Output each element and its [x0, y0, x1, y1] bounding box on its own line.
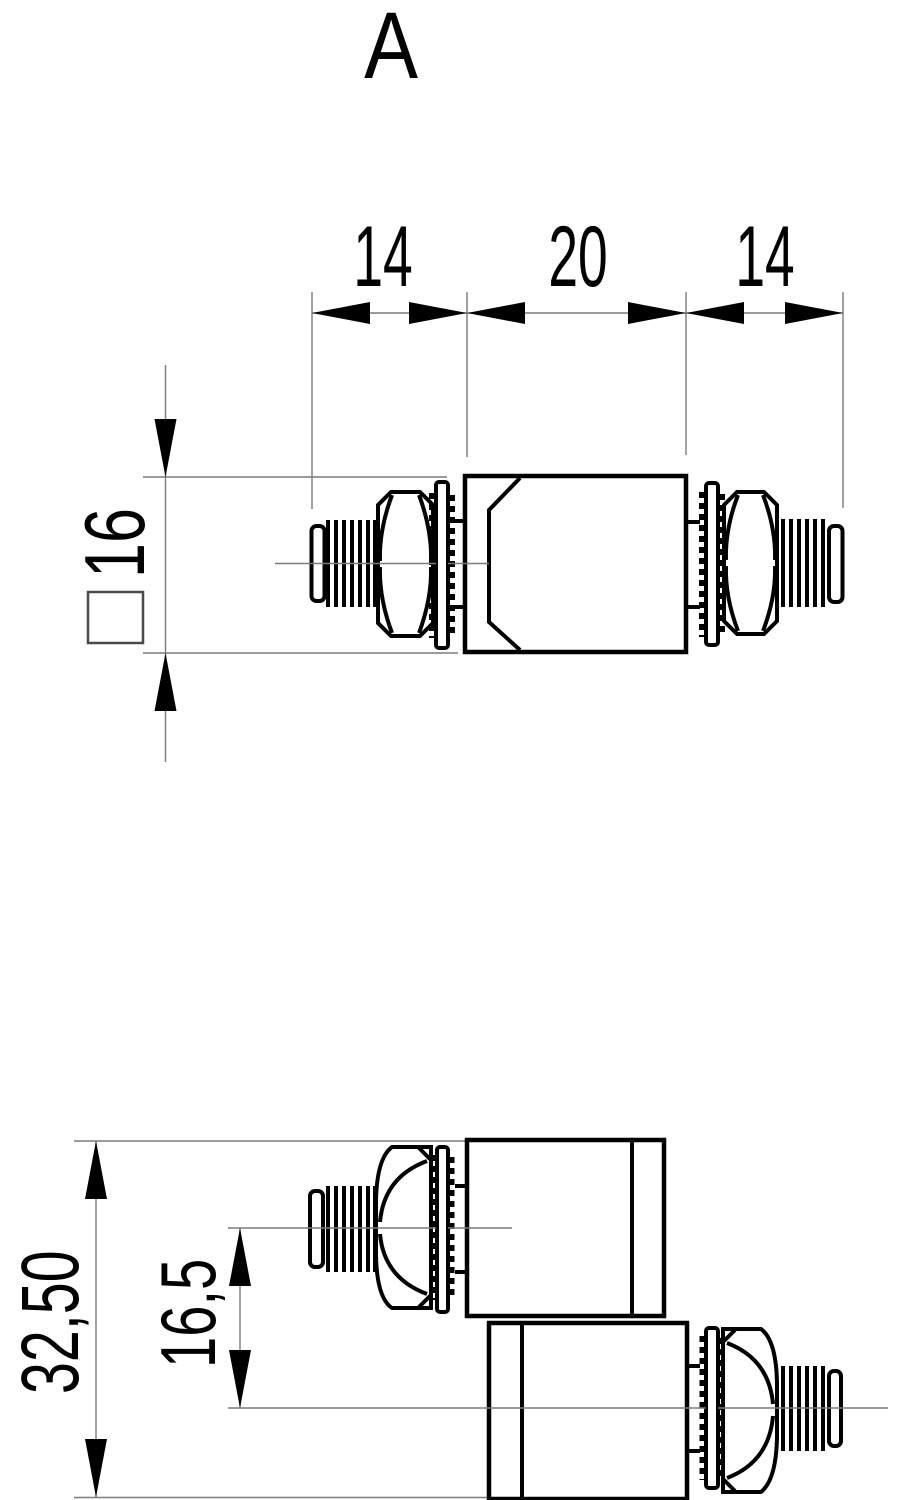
svg-text:32,50: 32,50	[4, 1250, 96, 1394]
view-label: A	[364, 0, 418, 98]
svg-text:16,5: 16,5	[145, 1259, 232, 1368]
bottom-upper-lock-washer	[434, 1147, 452, 1312]
view-label-text: A	[364, 0, 418, 98]
top-right-washer-plate	[706, 483, 718, 645]
bottom-upper-thread	[310, 1186, 375, 1272]
top-right-thread-tip	[829, 526, 843, 602]
drawing-svg: A 14 20 14 16 32,50 16,5	[0, 0, 897, 1500]
dim-label-14-right: 14	[735, 209, 794, 305]
bottom-lower-body	[489, 1323, 687, 1499]
svg-text:20: 20	[548, 209, 607, 305]
dim-label-3250: 32,50	[4, 1250, 96, 1394]
top-right-thread	[783, 519, 843, 607]
square-section-symbol	[88, 592, 143, 643]
top-left-lock-washer	[433, 482, 452, 648]
top-right-hex-nut	[724, 492, 777, 634]
bottom-dim-165	[229, 1228, 251, 1408]
bottom-lower-washer-plate	[706, 1328, 718, 1488]
dim-label-16: 16	[67, 508, 162, 578]
svg-text:14: 14	[353, 209, 412, 305]
top-right-lock-washer	[703, 483, 722, 645]
dim-label-14-left: 14	[353, 209, 412, 305]
top-left-washer-plate	[436, 482, 448, 648]
technical-drawing-canvas: A 14 20 14 16 32,50 16,5	[0, 0, 897, 1500]
bottom-lower-hex-nut	[723, 1329, 777, 1492]
bottom-upper-washer-plate	[437, 1147, 448, 1312]
top-body	[465, 476, 686, 652]
dim-label-165: 16,5	[145, 1259, 232, 1368]
svg-text:16: 16	[67, 508, 162, 578]
bottom-upper-thread-tip	[310, 1191, 323, 1267]
dim-label-20: 20	[548, 209, 607, 305]
svg-text:14: 14	[735, 209, 794, 305]
